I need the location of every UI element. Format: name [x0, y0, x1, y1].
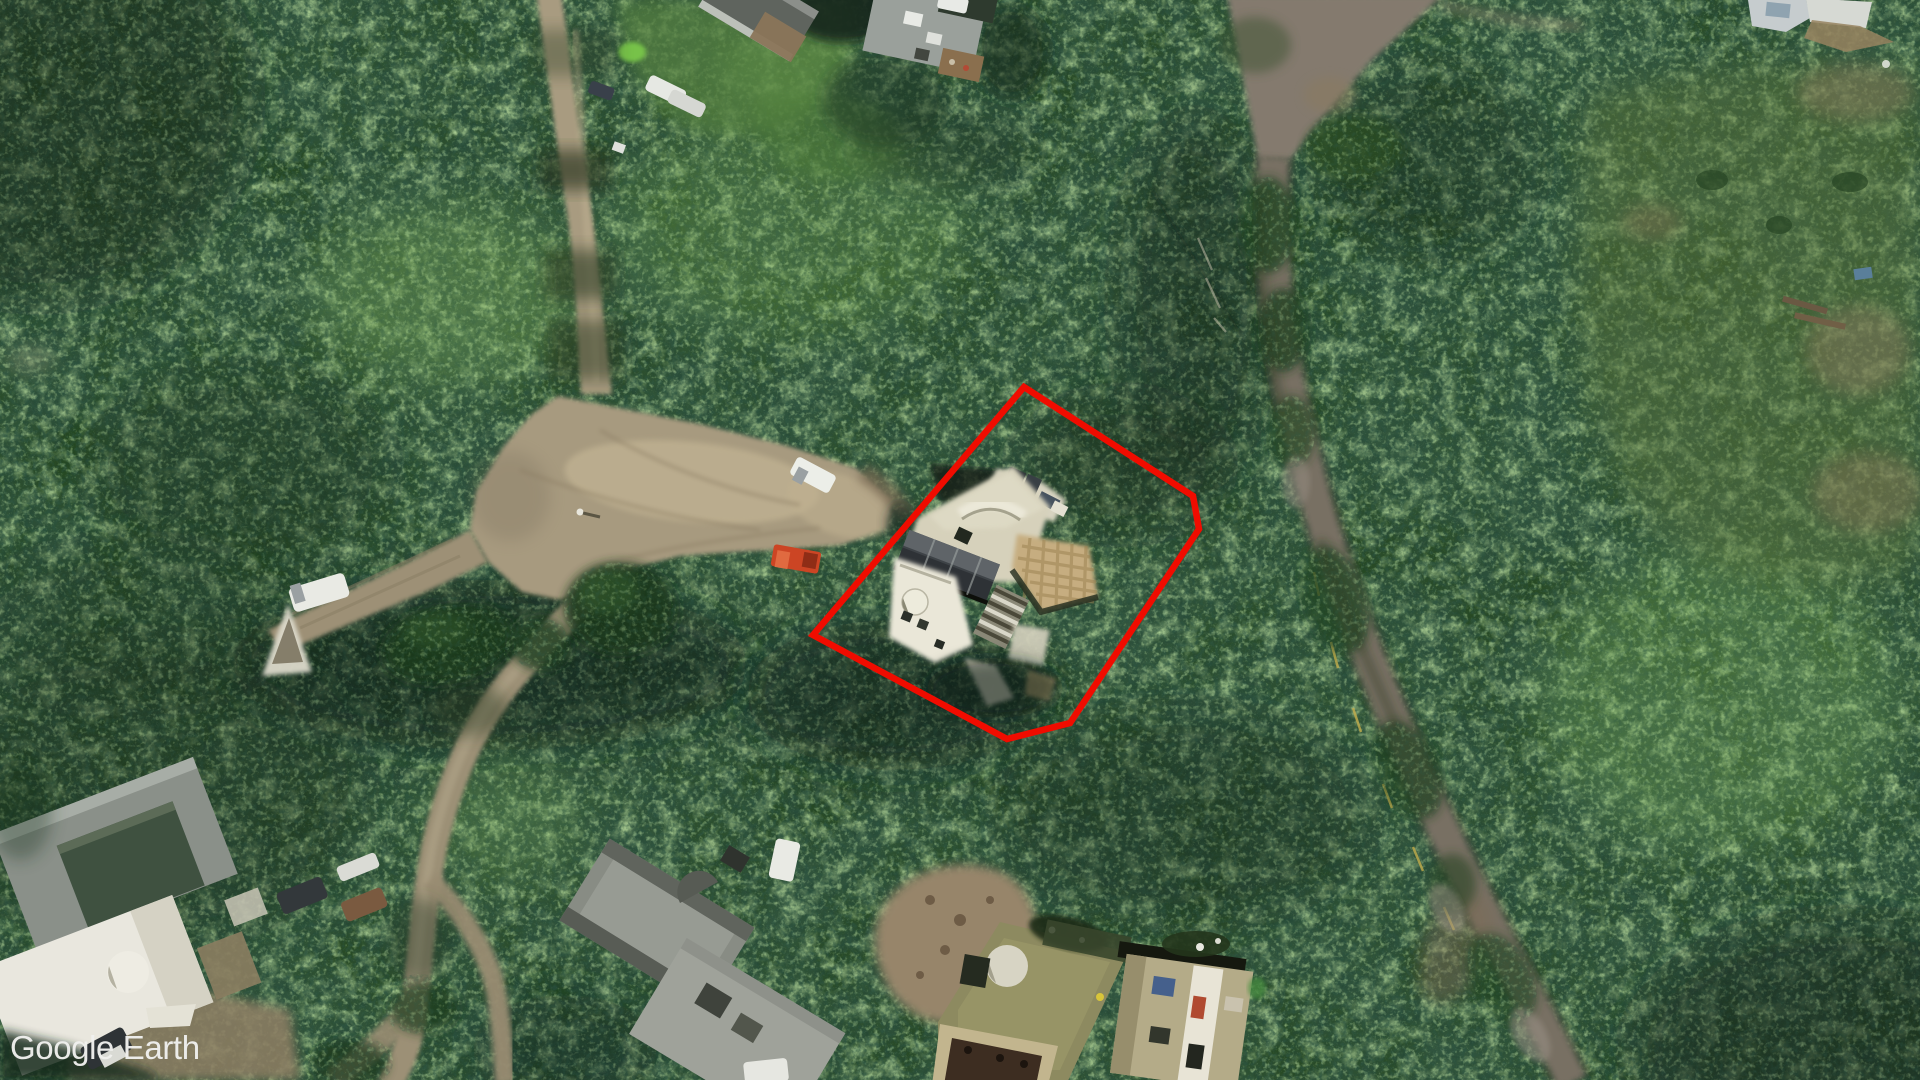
- svg-text:Google Earth: Google Earth: [10, 1029, 200, 1066]
